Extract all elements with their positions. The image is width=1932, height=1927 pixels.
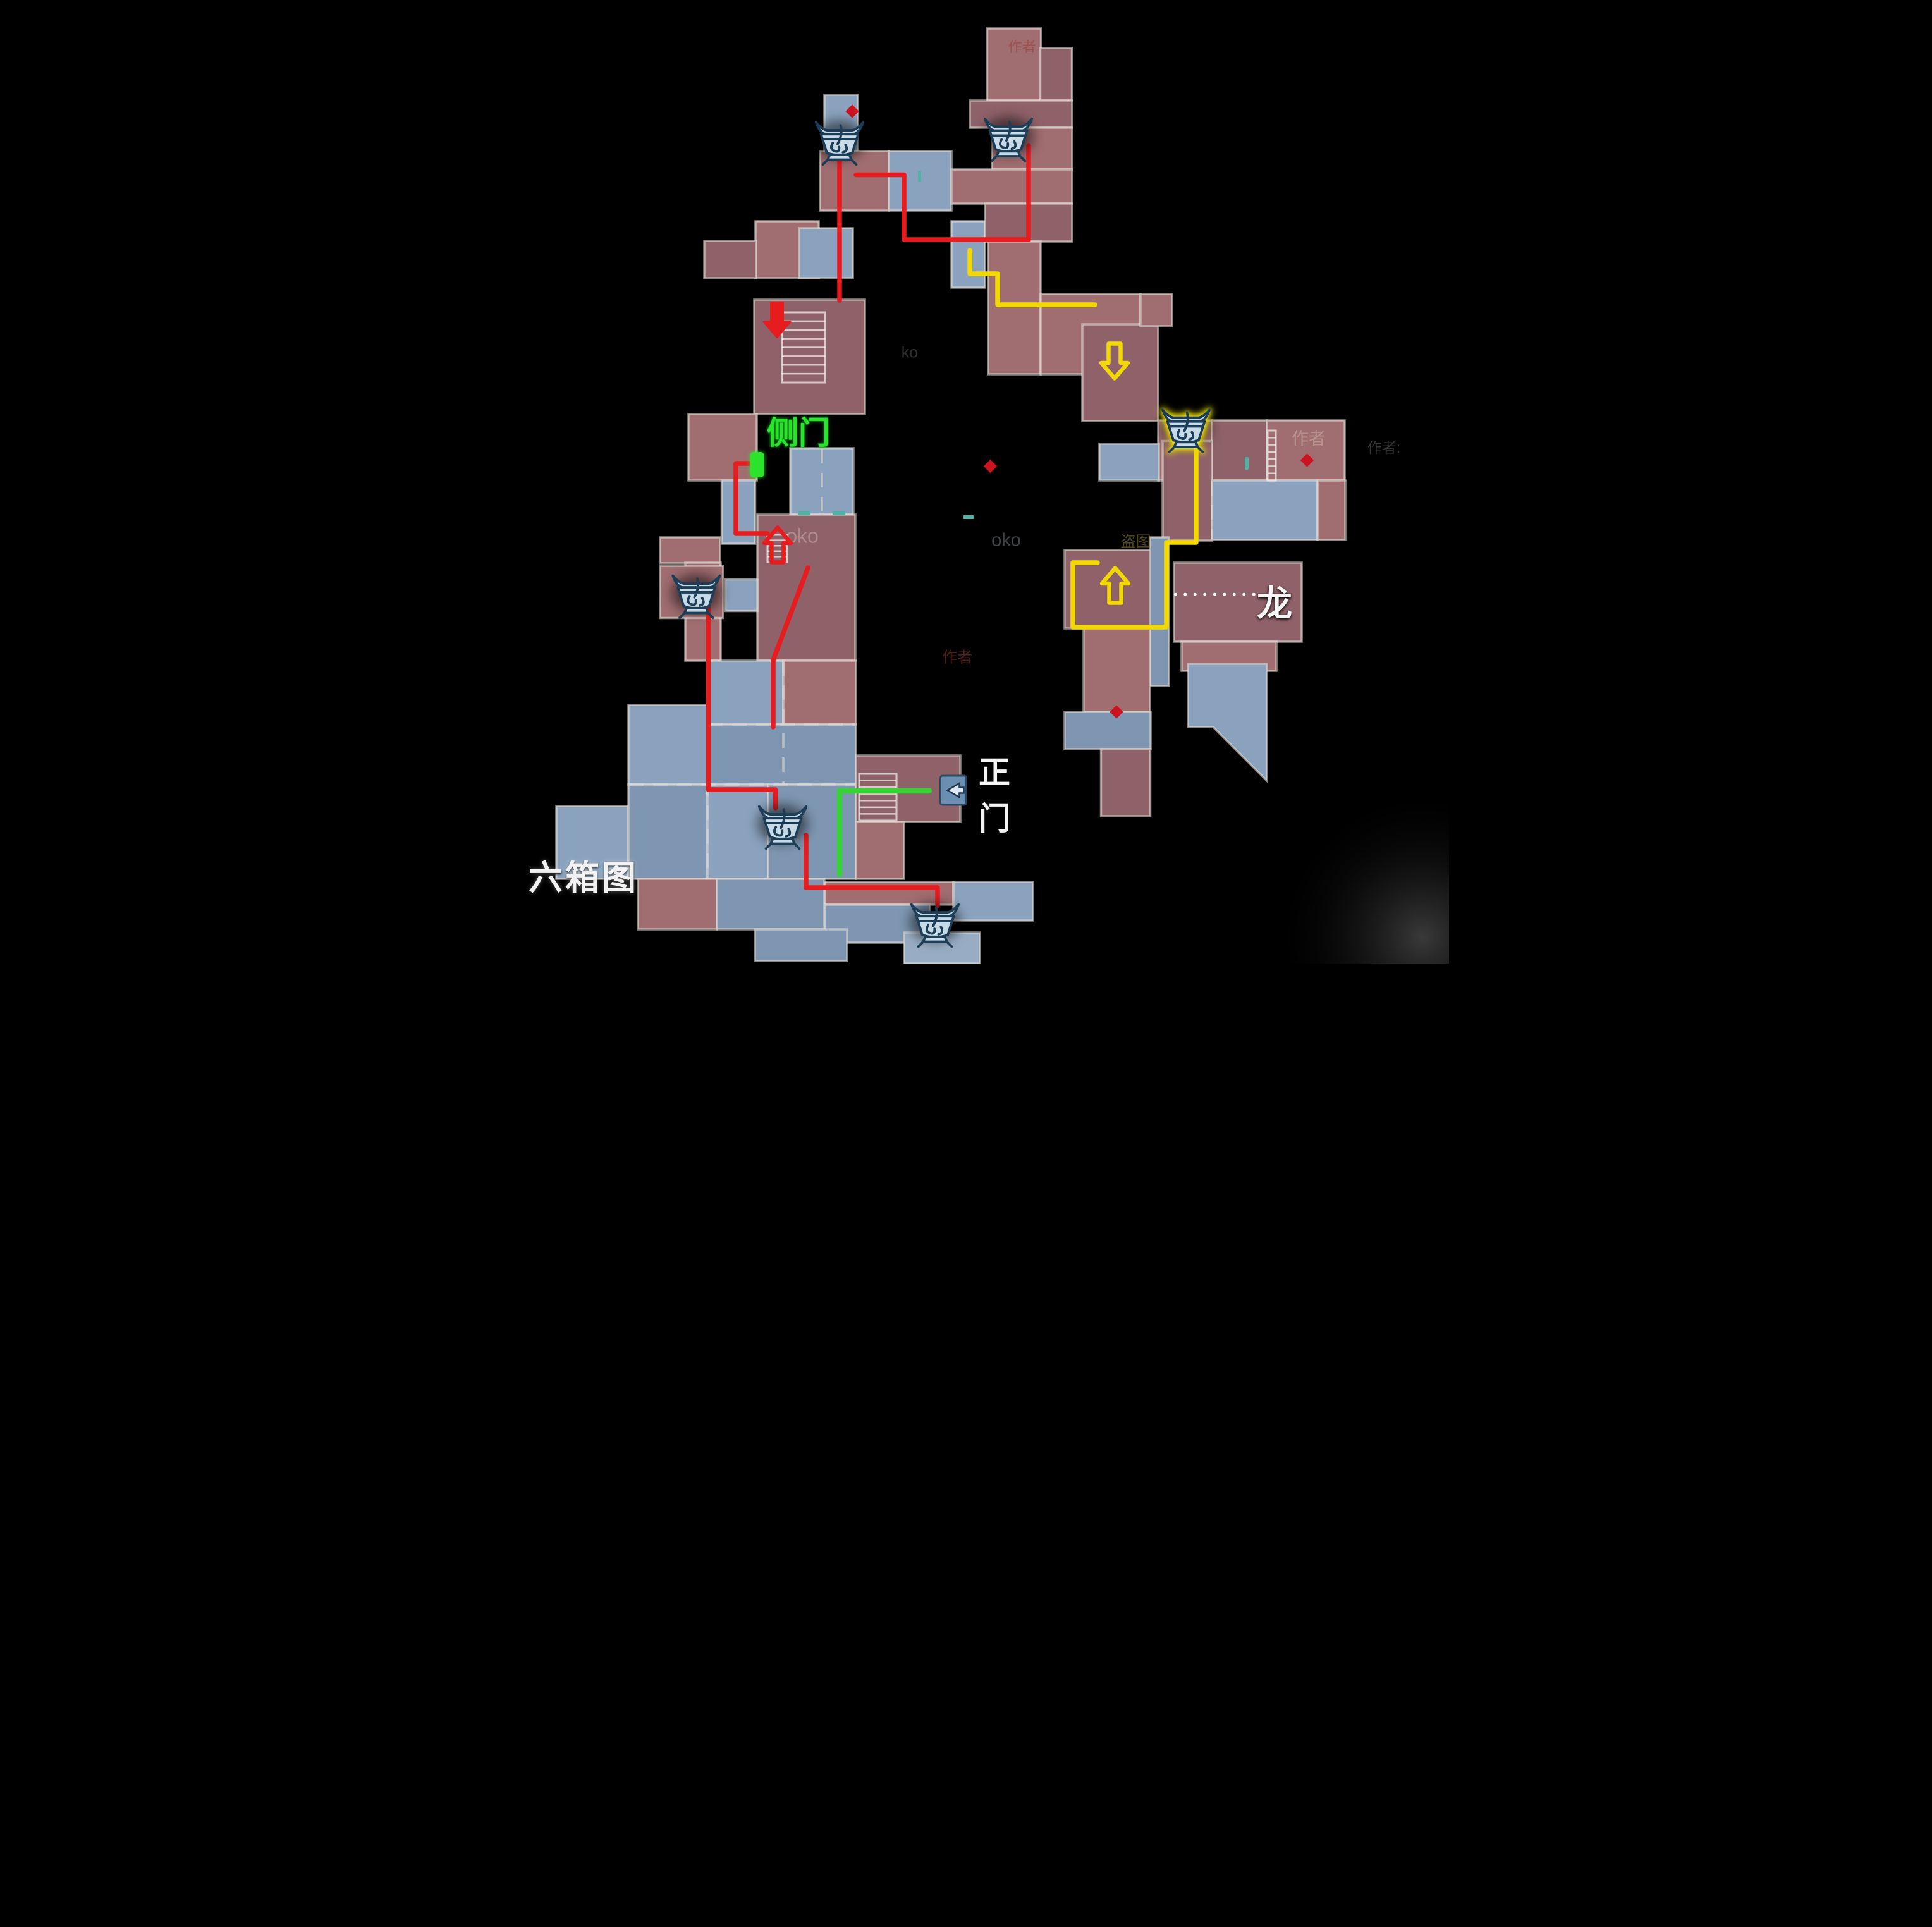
map-room <box>988 242 1041 374</box>
map-room <box>799 228 853 278</box>
watermark-text: 作者 <box>942 649 972 666</box>
watermark-text: oko <box>991 530 1021 551</box>
map-room <box>707 785 768 879</box>
watermark-text: ko <box>902 344 918 362</box>
map-room <box>628 785 707 879</box>
map-room <box>1318 480 1345 540</box>
map-room <box>638 879 717 929</box>
map-room <box>1084 626 1150 712</box>
map-room <box>726 580 758 611</box>
map-room <box>1212 480 1318 540</box>
side-door-marker <box>750 452 764 477</box>
map-room <box>707 725 856 785</box>
door-marker-icon <box>1245 457 1249 470</box>
game-map-screenshot: okookoko作者作者:作者盗图作者 #sym-gate rect{fill:… <box>483 0 1449 963</box>
watermark-text: 作者 <box>1292 429 1326 448</box>
map-room <box>1065 712 1151 749</box>
door-marker-icon <box>918 171 921 182</box>
door-marker-icon <box>798 511 810 515</box>
map-room <box>755 929 847 961</box>
watermark-text: 作者 <box>1008 39 1036 55</box>
door-marker-icon <box>833 511 845 515</box>
watermark-text: 盗图 <box>1121 533 1151 550</box>
main-gate-glyph <box>941 776 967 805</box>
map-room <box>628 705 707 785</box>
map-room <box>1041 48 1072 101</box>
map-room <box>1099 444 1159 480</box>
map-room <box>951 169 1072 204</box>
watermark-text: 作者: <box>1367 439 1400 456</box>
map-room <box>1174 563 1302 642</box>
map-room <box>556 806 628 879</box>
map-room <box>688 414 757 480</box>
map-room <box>856 822 904 879</box>
map-room <box>660 537 720 563</box>
map-room <box>704 241 756 278</box>
game-map: okookoko作者作者:作者盗图作者 #sym-gate rect{fill:… <box>483 0 1449 963</box>
map-room <box>1101 749 1151 816</box>
map-room <box>1140 294 1172 326</box>
map-room <box>1212 420 1267 480</box>
main-gate-icon <box>941 776 967 805</box>
map-room <box>783 661 856 725</box>
door-marker-icon <box>963 515 974 519</box>
map-room <box>953 882 1033 921</box>
map-room <box>1163 441 1212 541</box>
